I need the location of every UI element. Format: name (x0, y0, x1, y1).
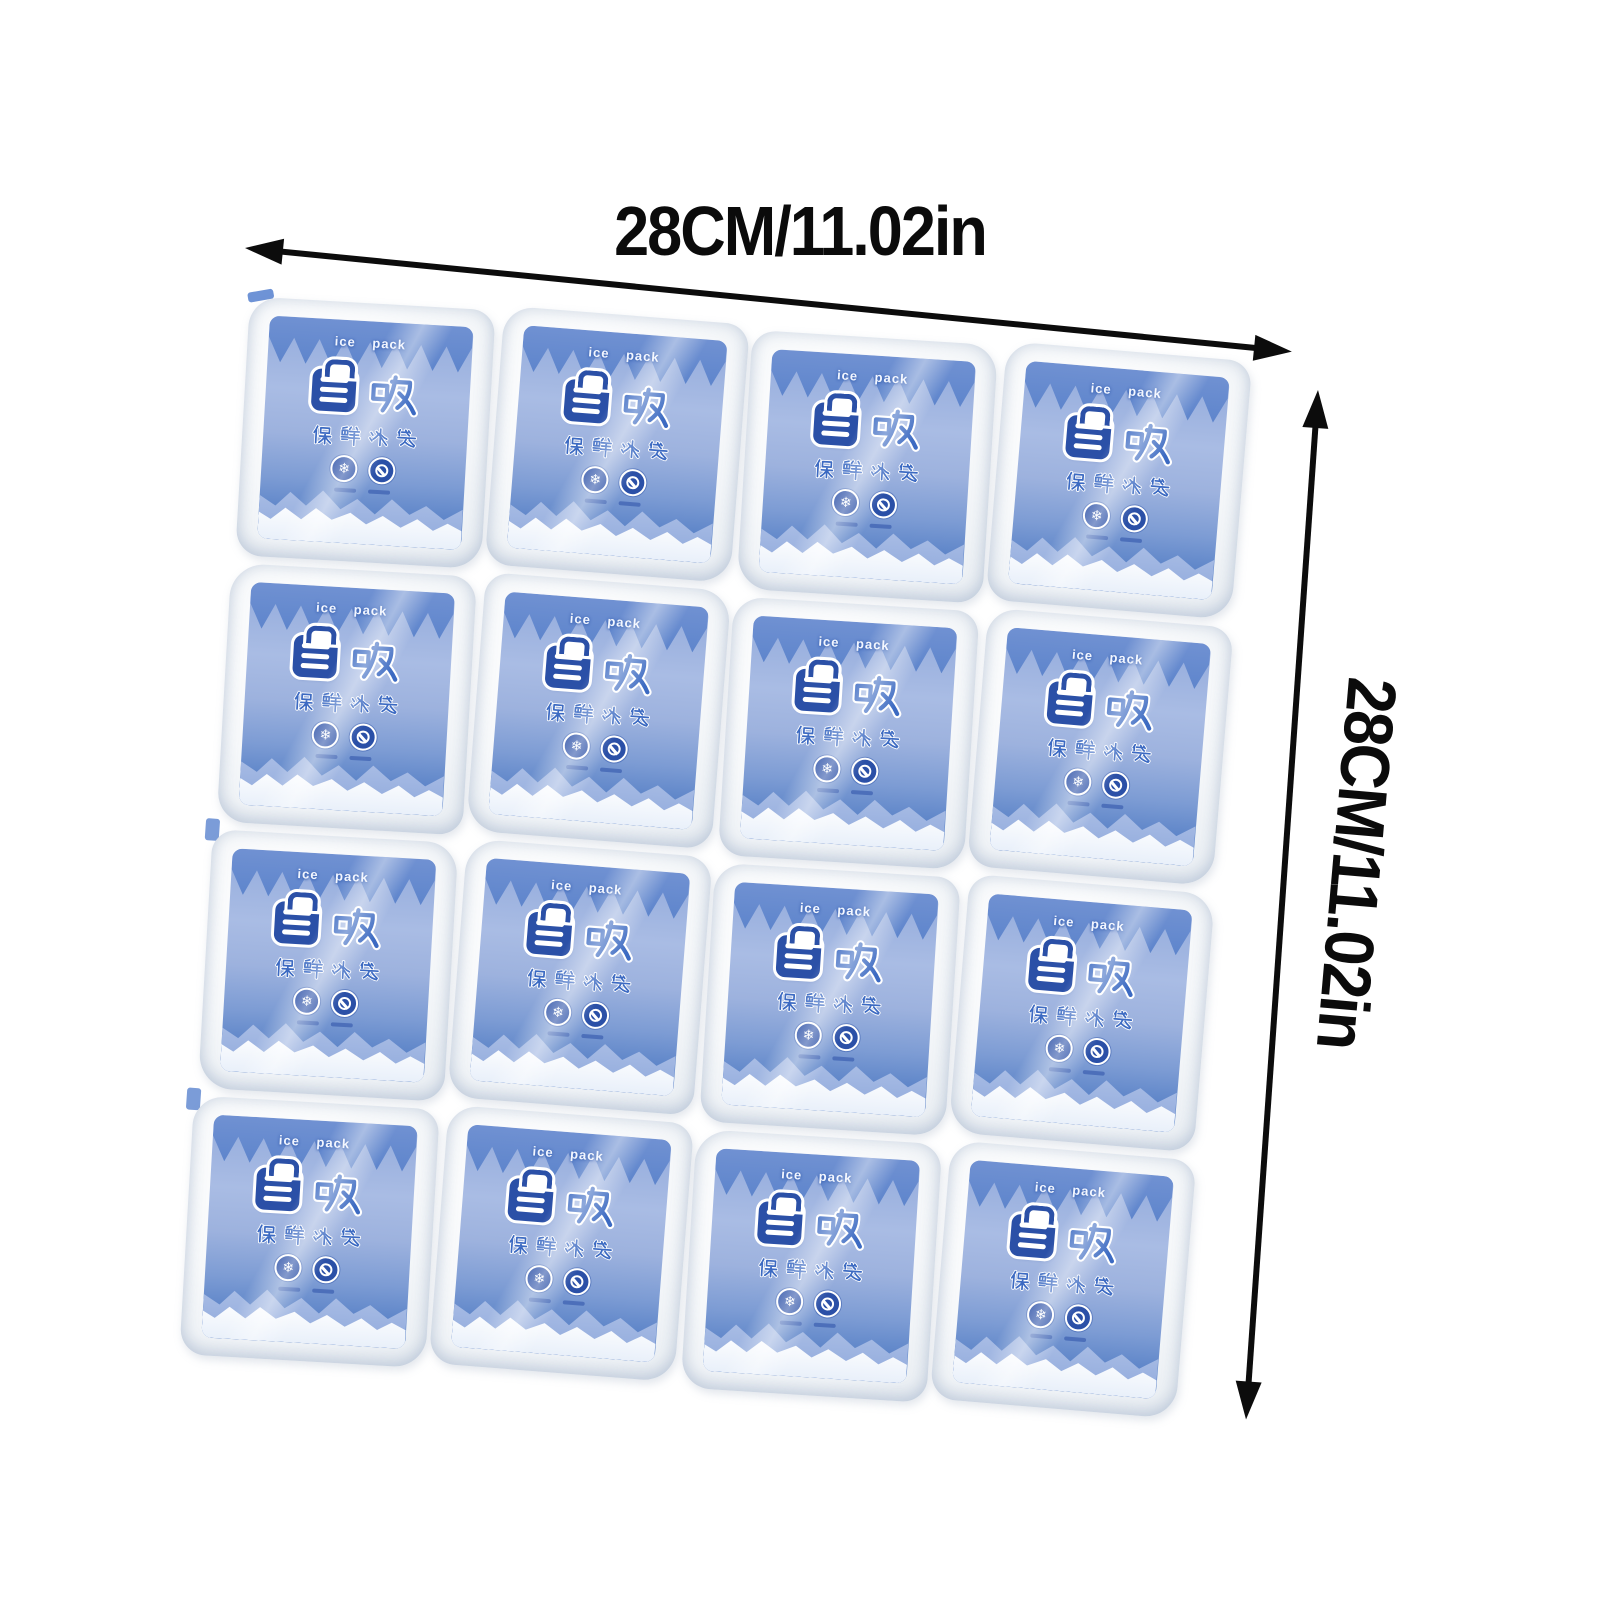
logo-char-xi (310, 1160, 369, 1219)
fine-print (334, 488, 390, 495)
logo-char-xi (617, 373, 677, 433)
brand-text-en: ice pack (297, 866, 369, 885)
ice-pack-pouch: ice pack (985, 341, 1251, 620)
self-suction-bag-icon (757, 1201, 804, 1246)
self-suction-bag-icon (255, 1167, 301, 1211)
logo-char-xi (561, 1172, 621, 1232)
ice-pack-cell: ice pack (235, 296, 495, 569)
prohibition-icon (813, 1290, 842, 1319)
ice-pack-label: ice pack (740, 616, 957, 851)
ice-pack-grid: ice pack (178, 292, 1250, 1419)
ice-pack-pouch: ice pack (681, 1129, 942, 1403)
ice-pack-cell: ice pack (929, 1140, 1195, 1419)
snowflake-icon: ❄ (1026, 1300, 1055, 1329)
product-name-cn (255, 1221, 363, 1250)
self-suction-bag-icon (776, 935, 823, 980)
brand-logo (813, 391, 927, 456)
char-bing (831, 992, 855, 1016)
char-bao (1008, 1267, 1033, 1292)
ice-pack-cell: ice pack (736, 330, 997, 604)
fine-print (779, 1321, 835, 1329)
self-suction-bag-icon (1065, 414, 1112, 460)
char-bao (274, 955, 298, 979)
char-bao (525, 965, 550, 990)
logo-char-xi (366, 361, 425, 420)
prohibition-icon (1101, 771, 1130, 800)
snowflake-icon: ❄ (293, 987, 322, 1016)
brand-logo (255, 1156, 369, 1220)
fine-print (278, 1287, 334, 1294)
product-photo: 28CM/11.02in 28CM/11.02in ice pack (0, 0, 1600, 1600)
char-bing (850, 726, 874, 750)
logo-char-xi (1082, 942, 1142, 1002)
snowflake-icon: ❄ (311, 721, 340, 750)
char-dai (897, 461, 921, 485)
char-xian (320, 690, 344, 714)
ice-pack-cell: ice pack (217, 563, 477, 836)
char-bao (1064, 468, 1089, 493)
snowflake-icon: ❄ (1082, 501, 1111, 530)
char-bao (775, 989, 799, 1013)
char-xian (1073, 737, 1098, 762)
product-name-cn (506, 1232, 614, 1263)
product-name-cn (274, 955, 382, 984)
ice-pack-pouch: ice pack (736, 330, 997, 604)
char-bao (506, 1232, 531, 1257)
prohibition-icon (562, 1267, 591, 1296)
product-name-cn (1045, 735, 1154, 767)
char-dai (590, 1238, 615, 1263)
ice-pack-cell: ice pack (465, 572, 730, 849)
snowflake-icon: ❄ (274, 1253, 303, 1282)
ice-pack-pouch: ice pack (217, 563, 477, 836)
self-suction-bag-icon (311, 368, 357, 412)
ice-pack-pouch: ice pack (929, 1140, 1195, 1419)
ice-pack-cell: ice pack (985, 341, 1251, 620)
char-dai (1129, 742, 1154, 767)
char-bao (1045, 735, 1070, 760)
char-xian (803, 990, 827, 1014)
ice-pack-pouch: ice pack (198, 829, 458, 1102)
self-suction-bag-icon (292, 634, 338, 678)
snowflake-icon: ❄ (580, 465, 609, 494)
char-bao (255, 1221, 279, 1245)
char-bing (1101, 739, 1126, 764)
ice-pack-label: ice pack (759, 349, 976, 584)
prohibition-icon (599, 735, 628, 764)
info-icons: ❄ (524, 1264, 591, 1296)
char-dai (339, 1226, 363, 1250)
ice-pack-label: ice pack (1007, 361, 1228, 600)
info-icons: ❄ (794, 1021, 861, 1052)
info-icons: ❄ (562, 732, 629, 764)
char-dai (1147, 475, 1172, 500)
fine-print (1048, 1067, 1104, 1076)
ice-pack-pouch: ice pack (948, 874, 1214, 1153)
product-name-cn (1064, 468, 1173, 500)
char-bing (330, 958, 354, 982)
self-suction-bag-icon (813, 402, 860, 447)
char-dai (841, 1260, 865, 1284)
product-name-cn (311, 422, 419, 451)
char-bing (562, 1236, 587, 1261)
ice-pack-cell: ice pack (681, 1129, 942, 1403)
ice-pack-pouch: ice pack (699, 863, 960, 1137)
char-dai (358, 960, 382, 984)
brand-logo (292, 624, 406, 688)
brand-text-en: ice pack (799, 900, 871, 919)
char-xian (283, 1223, 307, 1247)
char-xian (339, 424, 363, 448)
ice-pack-label: ice pack (201, 1115, 417, 1349)
ice-pack-label: ice pack (952, 1160, 1173, 1399)
info-icons: ❄ (293, 987, 359, 1018)
ice-pack-cell: ice pack (198, 829, 458, 1102)
self-suction-bag-icon (563, 379, 610, 424)
prohibition-icon (618, 468, 647, 497)
info-icons: ❄ (1044, 1034, 1111, 1066)
info-icons: ❄ (311, 721, 377, 752)
fine-print (1067, 801, 1123, 810)
brand-logo (562, 368, 677, 435)
brand-logo (525, 900, 640, 967)
ice-pack-sheet: ice pack (178, 292, 1250, 1419)
ice-pack-label: ice pack (989, 627, 1210, 866)
ice-pack-cell: ice pack (484, 306, 749, 583)
brand-logo (273, 890, 387, 954)
fine-print (584, 498, 640, 506)
char-bao (794, 722, 818, 746)
logo-char-xi (1063, 1208, 1123, 1268)
char-xian (590, 435, 615, 460)
snowflake-icon: ❄ (776, 1287, 805, 1316)
snowflake-icon: ❄ (831, 488, 860, 517)
char-xian (1036, 1270, 1061, 1295)
product-name-cn (292, 689, 400, 718)
info-icons: ❄ (776, 1287, 843, 1318)
ice-pack-label: ice pack (450, 1124, 670, 1362)
ice-pack-label: ice pack (257, 316, 473, 550)
info-icons: ❄ (274, 1253, 340, 1284)
fine-print (835, 521, 891, 529)
self-suction-bag-icon (507, 1178, 554, 1223)
product-name-cn (775, 989, 883, 1019)
char-bing (618, 437, 643, 462)
brand-logo (757, 1190, 871, 1255)
brand-text-en: ice pack (837, 367, 909, 386)
height-dimension-label: 28CM/11.02in (1300, 674, 1411, 1051)
char-bing (869, 460, 893, 484)
brand-text-en: ice pack (818, 634, 890, 653)
self-suction-bag-icon (525, 911, 572, 956)
char-bing (1119, 473, 1144, 498)
product-name-cn (1008, 1267, 1117, 1299)
prohibition-icon (349, 723, 378, 752)
product-name-cn (794, 722, 902, 752)
logo-char-xi (347, 628, 406, 687)
char-bing (367, 425, 391, 449)
ice-pack-cell: ice pack (447, 838, 712, 1115)
prohibition-icon (1082, 1037, 1111, 1066)
char-xian (534, 1234, 559, 1259)
char-bing (813, 1259, 837, 1283)
char-bao (562, 433, 587, 458)
fine-print (297, 1020, 353, 1027)
arrow-shaft (1245, 420, 1319, 1390)
ice-pack-label: ice pack (239, 582, 455, 816)
char-bao (292, 689, 316, 713)
self-suction-bag-icon (794, 668, 841, 713)
fine-print (528, 1297, 584, 1305)
ice-pack-pouch: ice pack (428, 1105, 693, 1382)
self-suction-bag-icon (544, 645, 591, 690)
product-name-cn (1026, 1001, 1135, 1033)
ice-pack-pouch: ice pack (718, 596, 979, 870)
product-name-cn (757, 1255, 865, 1285)
char-bao (543, 699, 568, 724)
product-name-cn (562, 433, 670, 464)
prohibition-icon (312, 1256, 341, 1285)
logo-char-xi (580, 906, 640, 966)
snowflake-icon: ❄ (524, 1264, 553, 1293)
char-dai (395, 427, 419, 451)
info-icons: ❄ (1082, 501, 1149, 533)
prohibition-icon (581, 1001, 610, 1030)
ice-pack-label: ice pack (220, 848, 436, 1082)
fine-print (565, 765, 621, 773)
info-icons: ❄ (543, 998, 610, 1030)
fine-print (817, 788, 873, 796)
snowflake-icon: ❄ (543, 998, 572, 1027)
char-bao (757, 1255, 781, 1279)
logo-char-xi (599, 639, 659, 699)
ice-pack-cell: ice pack (179, 1095, 439, 1368)
char-bing (599, 703, 624, 728)
snowflake-icon: ❄ (813, 755, 842, 784)
ice-pack-cell: ice pack (948, 874, 1214, 1153)
info-icons: ❄ (813, 755, 880, 786)
product-name-cn (525, 965, 633, 996)
logo-char-xi (812, 1194, 871, 1253)
char-dai (1091, 1275, 1116, 1300)
snowflake-icon: ❄ (330, 454, 359, 483)
char-bing (1064, 1272, 1089, 1297)
prohibition-icon (832, 1023, 861, 1052)
brand-logo (1027, 936, 1142, 1003)
ice-pack-label: ice pack (721, 882, 938, 1117)
info-icons: ❄ (831, 488, 898, 519)
arrow-right-head-icon (1253, 335, 1293, 365)
logo-char-xi (1100, 675, 1160, 735)
info-icons: ❄ (1026, 1300, 1093, 1332)
self-suction-bag-icon (1046, 681, 1093, 727)
brand-logo (1008, 1203, 1123, 1270)
snowflake-icon: ❄ (1063, 767, 1092, 796)
brand-text-en: ice pack (316, 600, 388, 619)
snowflake-icon: ❄ (794, 1021, 823, 1050)
logo-char-xi (830, 928, 889, 987)
fine-print (1085, 534, 1141, 543)
char-bing (311, 1224, 335, 1248)
ice-pack-label: ice pack (488, 592, 708, 830)
ice-pack-cell: ice pack (718, 596, 979, 870)
brand-logo (1046, 670, 1161, 737)
brand-text-en: ice pack (334, 333, 406, 352)
char-bing (348, 692, 372, 716)
width-dimension-label: 28CM/11.02in (614, 192, 986, 271)
logo-char-xi (849, 662, 908, 721)
ice-pack-pouch: ice pack (447, 838, 712, 1115)
char-xian (822, 724, 846, 748)
prohibition-icon (851, 757, 880, 786)
ice-pack-pouch: ice pack (465, 572, 730, 849)
product-name-cn (813, 456, 921, 486)
char-bing (581, 970, 606, 995)
fine-print (547, 1031, 603, 1039)
char-xian (1092, 471, 1117, 496)
char-dai (376, 693, 400, 717)
ice-pack-label: ice pack (703, 1148, 920, 1383)
fine-print (315, 754, 371, 761)
ice-pack-label: ice pack (506, 325, 726, 563)
ice-pack-cell: ice pack (699, 863, 960, 1137)
snowflake-icon: ❄ (1044, 1034, 1073, 1063)
char-dai (859, 994, 883, 1018)
product-name-cn (543, 699, 651, 730)
info-icons: ❄ (1063, 767, 1130, 799)
fine-print (798, 1054, 854, 1062)
char-xian (553, 968, 578, 993)
brand-logo (1064, 403, 1179, 470)
prohibition-icon (1064, 1303, 1093, 1332)
prohibition-icon (368, 457, 397, 486)
arrow-down-head-icon (1233, 1381, 1262, 1421)
brand-logo (794, 657, 908, 722)
brand-logo (775, 924, 889, 989)
prohibition-icon (1119, 504, 1148, 533)
char-xian (302, 956, 326, 980)
logo-char-xi (328, 894, 387, 953)
logo-char-xi (868, 395, 927, 454)
char-bao (311, 422, 335, 446)
ice-pack-label: ice pack (469, 858, 689, 1096)
ice-pack-pouch: ice pack (235, 296, 495, 569)
self-suction-bag-icon (1027, 947, 1074, 993)
info-icons: ❄ (330, 454, 396, 485)
snowflake-icon: ❄ (562, 732, 591, 761)
brand-logo (311, 357, 425, 421)
char-dai (646, 439, 671, 464)
ice-pack-cell: ice pack (428, 1105, 693, 1382)
self-suction-bag-icon (274, 901, 320, 945)
brand-text-en: ice pack (781, 1166, 853, 1185)
brand-text-en: ice pack (278, 1132, 350, 1151)
ice-pack-pouch: ice pack (484, 306, 749, 583)
char-xian (785, 1257, 809, 1281)
info-icons: ❄ (580, 465, 647, 497)
char-bao (1026, 1001, 1051, 1026)
char-dai (878, 728, 902, 752)
char-dai (627, 706, 652, 731)
char-dai (608, 972, 633, 997)
ice-pack-pouch: ice pack (966, 607, 1232, 886)
brand-logo (544, 634, 659, 701)
ice-pack-pouch: ice pack (179, 1095, 439, 1368)
brand-logo (506, 1167, 621, 1234)
fine-print (1029, 1333, 1085, 1342)
prohibition-icon (331, 989, 360, 1018)
ice-pack-cell: ice pack (966, 607, 1232, 886)
char-bao (813, 456, 837, 480)
char-bing (1082, 1006, 1107, 1031)
char-xian (1054, 1003, 1079, 1028)
char-dai (1110, 1008, 1135, 1033)
ice-pack-label: ice pack (970, 893, 1191, 1132)
prohibition-icon (869, 491, 898, 520)
logo-char-xi (1119, 409, 1179, 469)
self-suction-bag-icon (1009, 1214, 1056, 1260)
char-xian (841, 458, 865, 482)
char-xian (571, 701, 596, 726)
